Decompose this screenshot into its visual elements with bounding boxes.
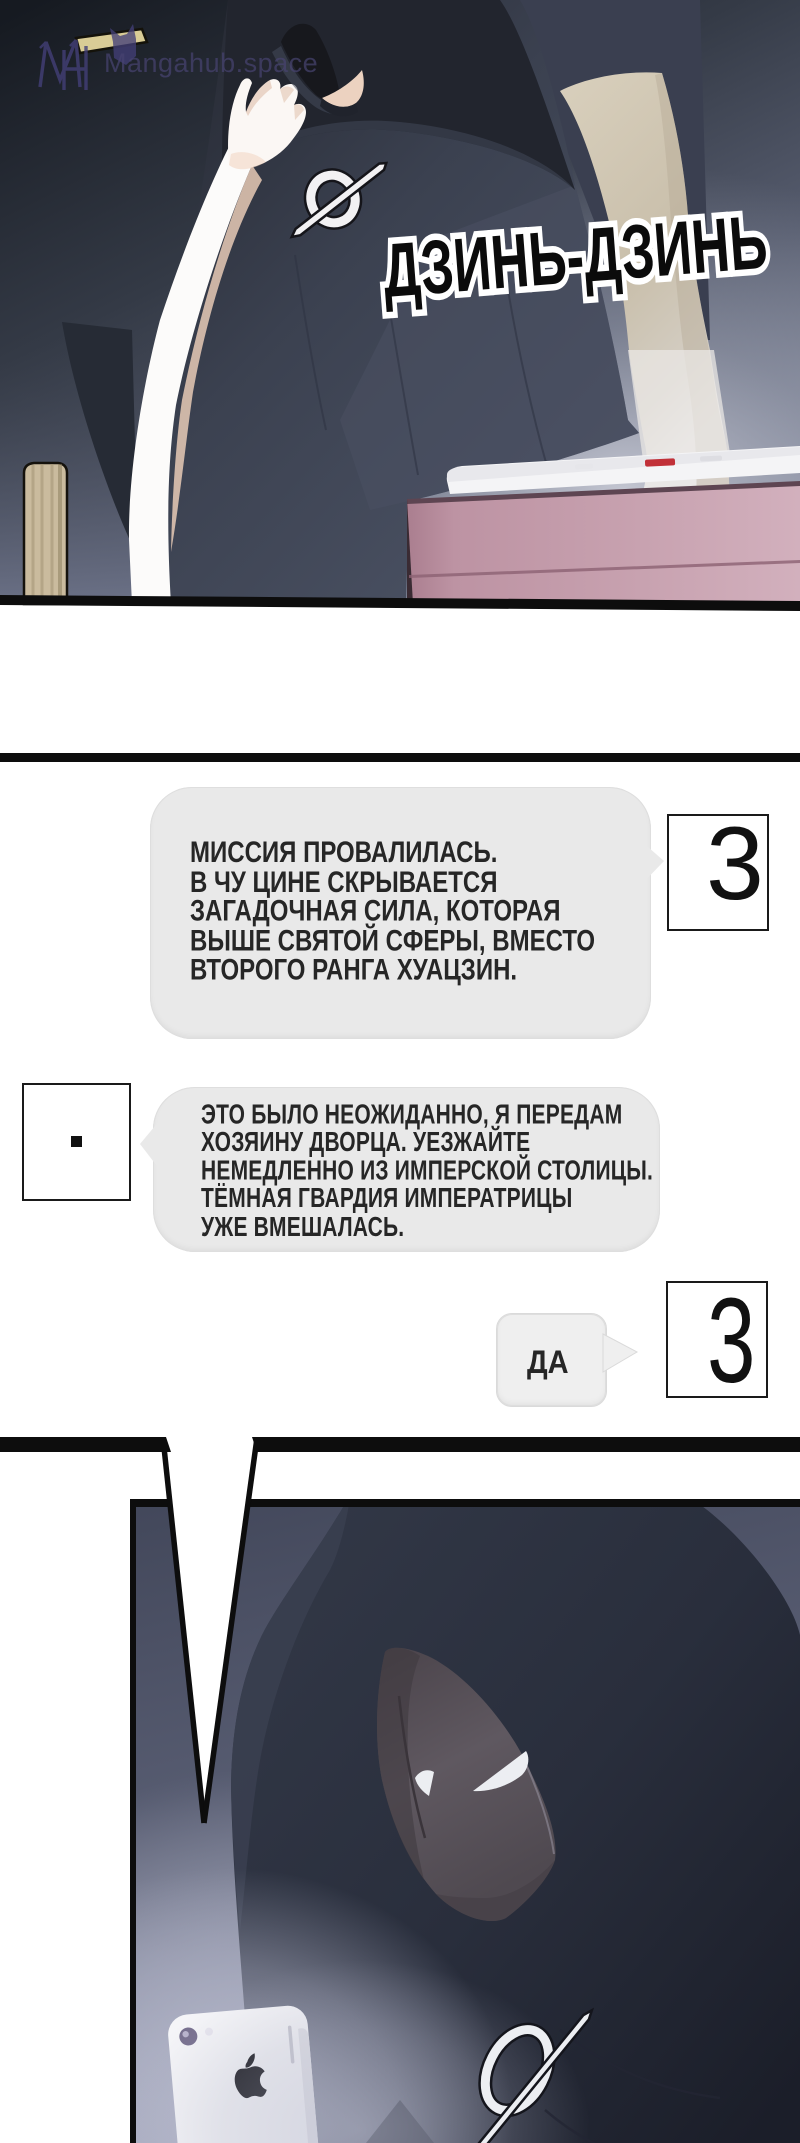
svg-text:Mangahub.space: Mangahub.space <box>104 48 318 78</box>
